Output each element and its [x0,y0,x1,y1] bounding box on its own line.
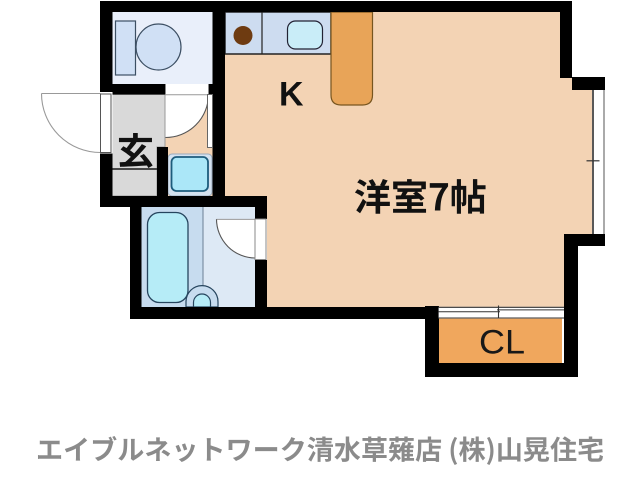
svg-text:CL: CL [479,324,525,362]
svg-text:K: K [279,76,304,114]
